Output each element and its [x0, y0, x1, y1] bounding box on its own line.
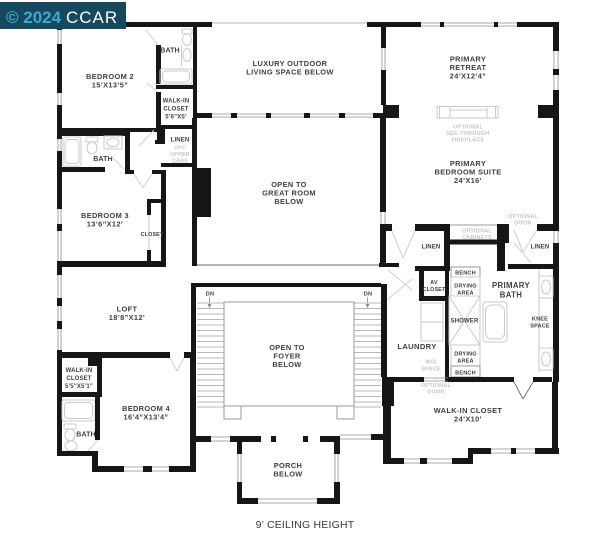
svg-text:LAUNDRY: LAUNDRY — [397, 342, 436, 351]
svg-text:BENCH: BENCH — [455, 271, 476, 277]
svg-text:BATH: BATH — [76, 432, 96, 439]
svg-text:SEE-THROUGH: SEE-THROUGH — [447, 131, 490, 137]
svg-text:WALK-IN: WALK-IN — [163, 99, 190, 105]
svg-text:BELOW: BELOW — [274, 197, 303, 206]
svg-text:OPT: OPT — [174, 146, 186, 152]
svg-text:WALK-IN: WALK-IN — [66, 368, 93, 374]
svg-text:9’ CEILING HEIGHT: 9’ CEILING HEIGHT — [256, 519, 355, 531]
svg-text:DRYING: DRYING — [454, 352, 476, 358]
svg-text:OPTIONAL: OPTIONAL — [421, 383, 452, 389]
svg-text:CLOSET: CLOSET — [163, 107, 188, 113]
svg-text:AREA: AREA — [457, 359, 473, 365]
svg-text:AV: AV — [430, 280, 438, 286]
svg-text:OPTIONAL: OPTIONAL — [453, 125, 484, 131]
svg-text:FIREPLACE: FIREPLACE — [451, 138, 484, 144]
svg-text:24’X16’: 24’X16’ — [454, 176, 482, 185]
svg-text:DN: DN — [364, 292, 372, 298]
svg-text:LIVING SPACE BELOW: LIVING SPACE BELOW — [246, 68, 333, 77]
svg-text:CLOSET: CLOSET — [141, 232, 164, 238]
svg-text:BELOW: BELOW — [273, 470, 302, 479]
svg-text:BELOW: BELOW — [272, 360, 301, 369]
svg-text:CLOSET: CLOSET — [66, 376, 91, 382]
svg-text:15’X13’5”: 15’X13’5” — [92, 81, 128, 90]
svg-text:BATH: BATH — [160, 48, 180, 55]
svg-text:PRIMARY: PRIMARY — [492, 281, 531, 290]
svg-text:OPTIONAL: OPTIONAL — [462, 229, 493, 235]
svg-text:SHOWER: SHOWER — [451, 319, 479, 325]
svg-text:LINEN: LINEN — [531, 245, 550, 251]
svg-text:BATH: BATH — [500, 291, 522, 300]
svg-text:CABINETS: CABINETS — [462, 235, 492, 241]
svg-text:24’X10’: 24’X10’ — [454, 415, 482, 424]
svg-text:© 2024: © 2024 — [6, 8, 62, 27]
svg-text:DOOR: DOOR — [427, 390, 444, 396]
svg-text:LINEN: LINEN — [171, 138, 190, 144]
svg-text:SPACE: SPACE — [530, 324, 550, 330]
svg-text:DN: DN — [206, 292, 214, 298]
svg-text:OPTIONAL: OPTIONAL — [508, 214, 539, 220]
svg-text:13’6”X12’: 13’6”X12’ — [87, 220, 123, 229]
svg-text:CCAR: CCAR — [66, 8, 118, 27]
svg-text:16’4”X13’4”: 16’4”X13’4” — [124, 413, 169, 422]
svg-text:BENCH: BENCH — [455, 371, 476, 377]
svg-text:BATH: BATH — [93, 156, 113, 163]
svg-text:SPACE: SPACE — [421, 367, 441, 373]
svg-text:DOOR: DOOR — [514, 221, 531, 227]
svg-text:5’5”X5’1”: 5’5”X5’1” — [65, 384, 93, 390]
svg-text:CLOSET: CLOSET — [423, 287, 446, 293]
svg-text:5’6”X5’: 5’6”X5’ — [165, 115, 187, 121]
svg-text:UPPER: UPPER — [170, 152, 189, 158]
svg-text:18’8”X12’: 18’8”X12’ — [109, 313, 145, 322]
svg-text:LINEN: LINEN — [422, 245, 441, 251]
svg-text:24’X12’4”: 24’X12’4” — [450, 72, 486, 81]
svg-text:DRYING: DRYING — [454, 284, 476, 290]
svg-text:W/D: W/D — [425, 360, 436, 366]
svg-text:KNEE: KNEE — [532, 317, 548, 323]
